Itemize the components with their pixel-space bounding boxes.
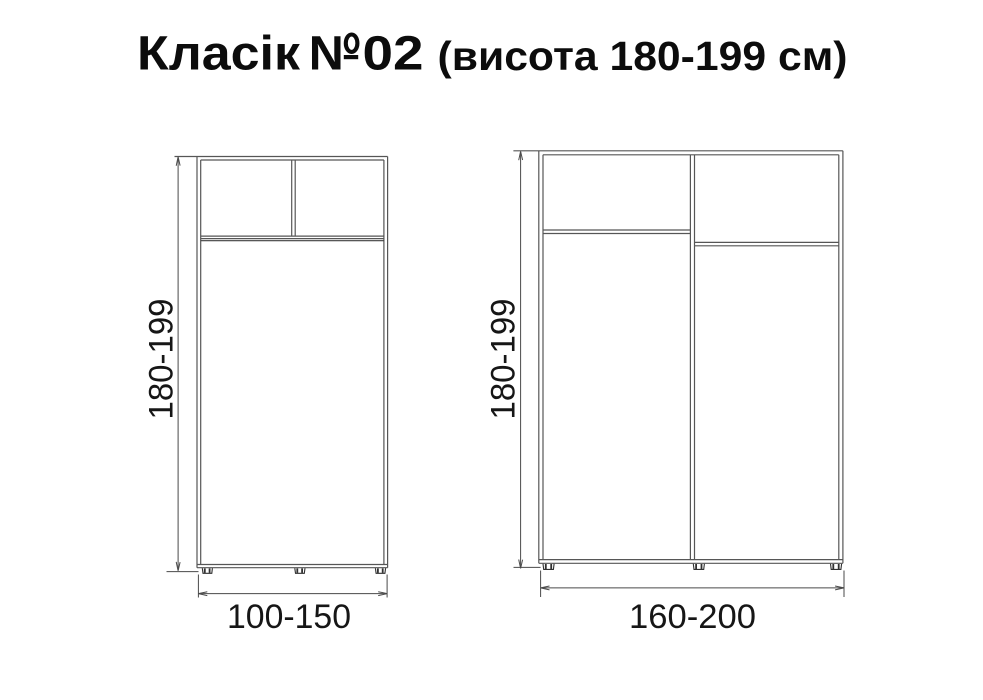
svg-text:100-150: 100-150 <box>227 598 351 636</box>
svg-text:N: N <box>309 27 344 81</box>
svg-text:160-200: 160-200 <box>629 598 756 636</box>
svg-text:180-199: 180-199 <box>143 299 181 420</box>
svg-text:180-199: 180-199 <box>485 299 523 420</box>
svg-text:(висота 180-199 см): (висота 180-199 см) <box>438 33 848 79</box>
svg-text:Класік: Класік <box>137 27 301 81</box>
svg-text:02: 02 <box>363 27 424 81</box>
